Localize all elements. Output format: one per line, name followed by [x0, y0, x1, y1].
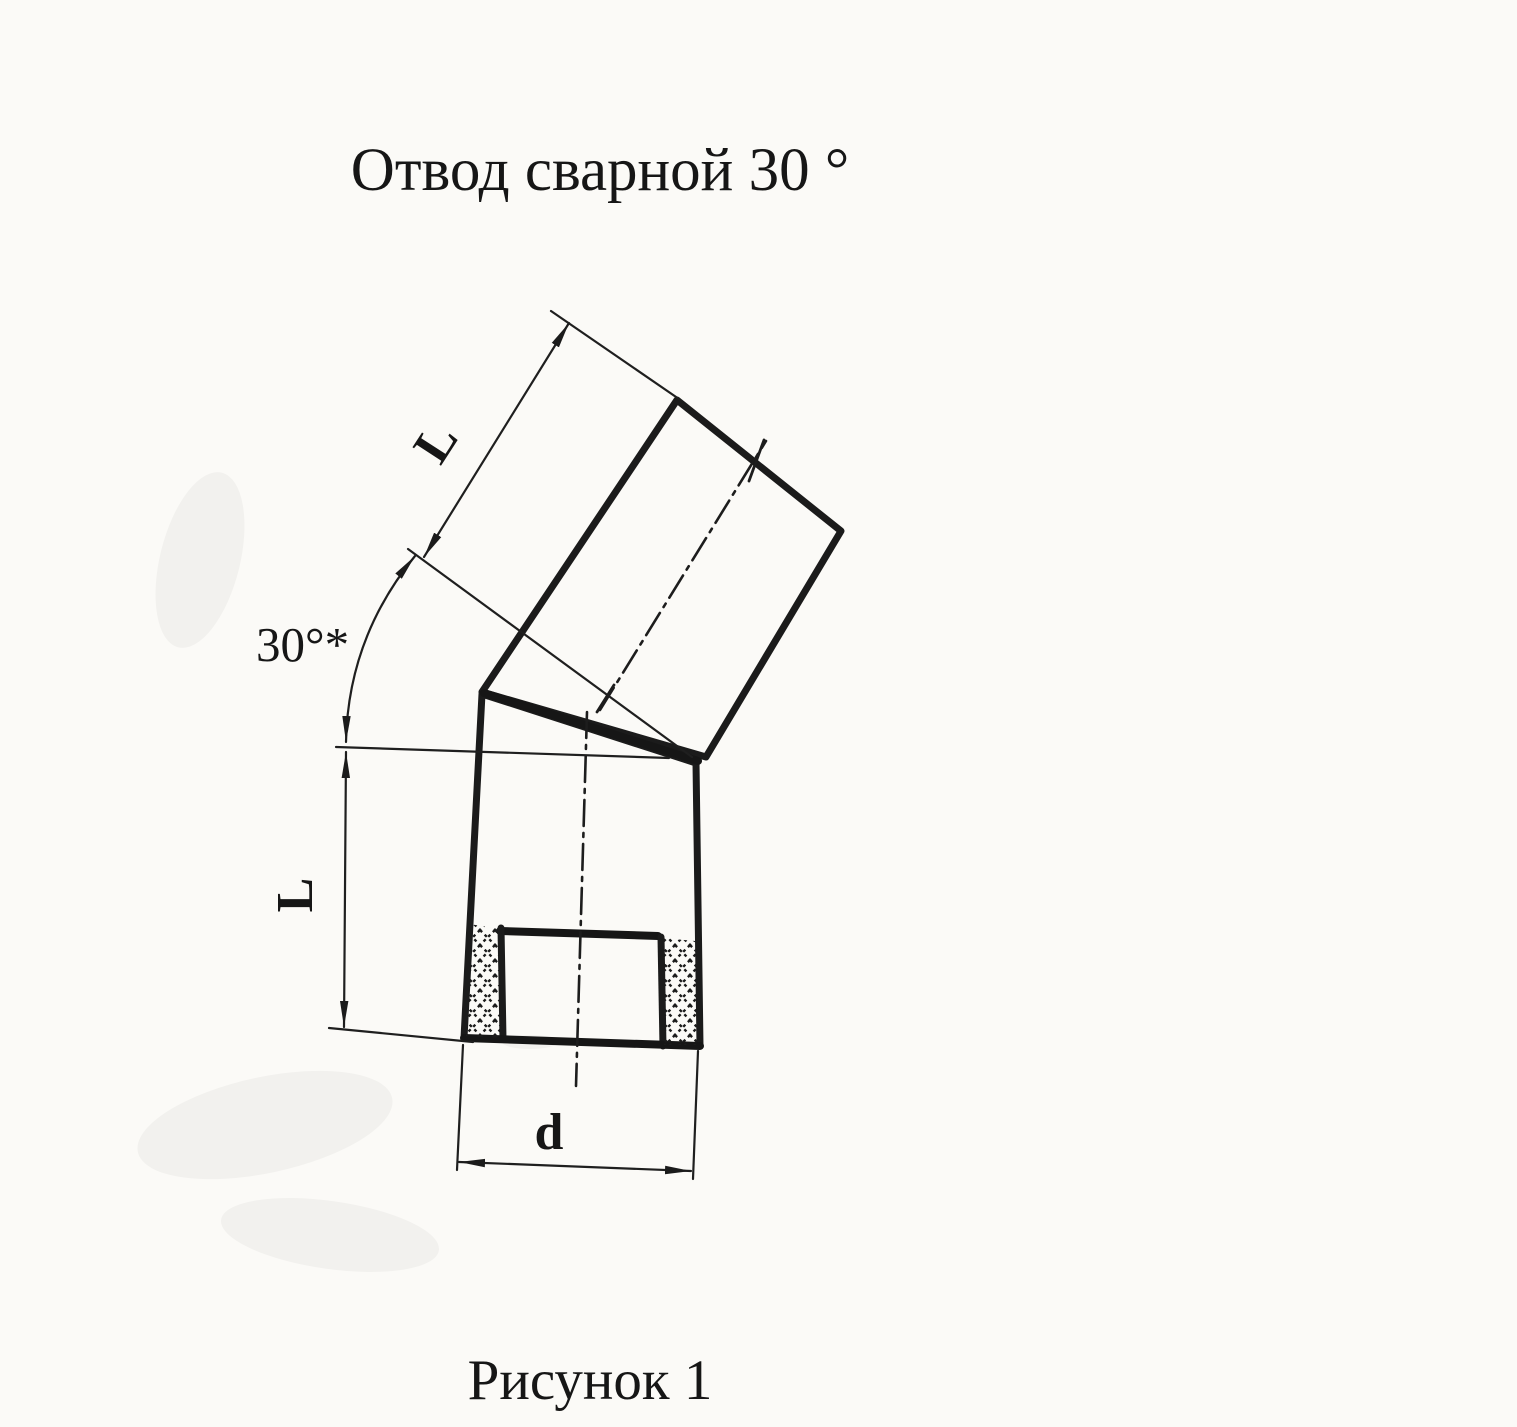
extension-line-joint — [408, 549, 692, 757]
d-extension-right — [693, 1051, 698, 1179]
wall-crosshatch-right — [663, 938, 699, 1045]
dimension-line-d — [459, 1162, 691, 1171]
label-diameter-d: d — [535, 1104, 564, 1161]
label-upper-L: L — [403, 413, 470, 473]
upper-pipe-segment — [482, 400, 841, 757]
socket-recess-top-edge — [500, 931, 658, 936]
weld-seam — [484, 693, 698, 761]
centerline-lower-pipe — [576, 712, 587, 1086]
pipe-wall-inner-right — [661, 937, 663, 1046]
d-extension-left — [457, 1045, 463, 1170]
angle-baseline — [336, 747, 669, 758]
wall-crosshatch-left — [466, 924, 503, 1038]
angle-arc — [346, 556, 415, 742]
drawing-title: Отвод сварной 30 ° — [351, 137, 849, 204]
scan-noise — [128, 463, 558, 1284]
dimension-line-lower-L — [344, 752, 346, 1027]
extension-line-upper-top — [551, 311, 679, 399]
figure-caption: Рисунок 1 — [468, 1349, 713, 1412]
scanned-drawing-page: Отвод сварной 30 ° L 30°* L — [0, 0, 1517, 1427]
extension-line-lower-bottom — [329, 1028, 473, 1042]
label-lower-L: L — [267, 878, 324, 913]
label-bend-angle: 30°* — [256, 617, 349, 672]
elbow-drawing-canvas: Отвод сварной 30 ° L 30°* L — [0, 0, 1517, 1427]
